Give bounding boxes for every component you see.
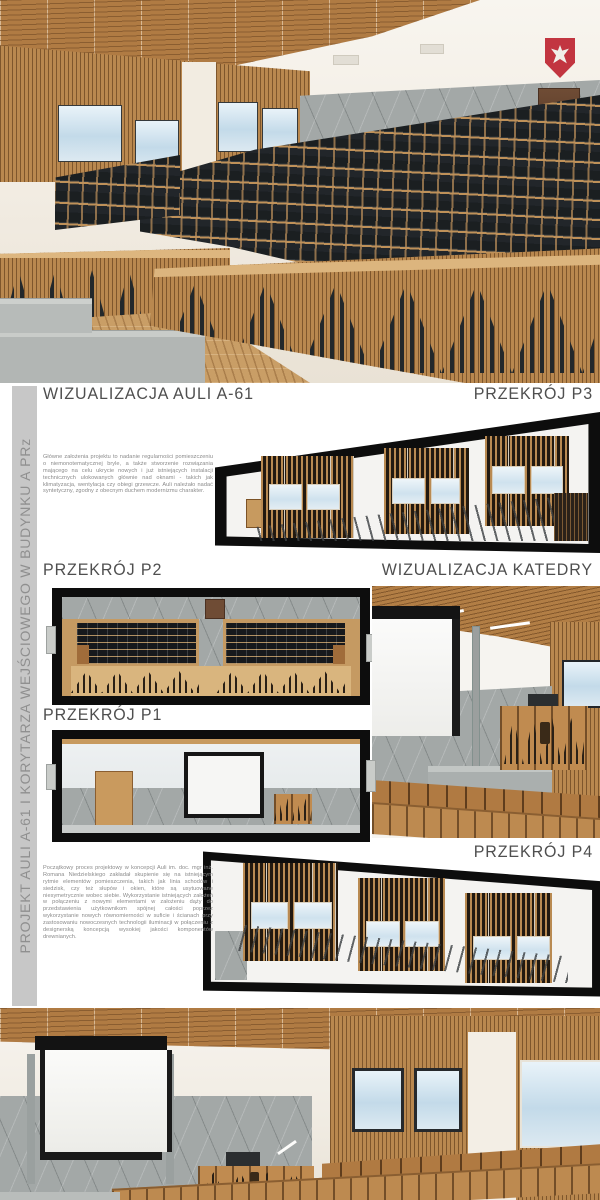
lectern — [274, 794, 313, 824]
vent-grille — [420, 44, 444, 54]
section-window — [492, 466, 525, 494]
heading-section-p2: PRZEKRÓJ P2 — [43, 562, 162, 581]
polish-eagle-emblem — [545, 38, 575, 78]
screen-mast — [472, 626, 480, 786]
vent-grille — [333, 55, 359, 65]
heading-section-p1: PRZEKRÓJ P1 — [43, 707, 162, 726]
katedra-lectern — [500, 706, 588, 770]
plan-railing-band — [71, 666, 351, 696]
katedra-front-render — [0, 1008, 600, 1200]
section-window — [531, 466, 564, 494]
sidebar-project-title-strip: PROJEKT AULI A-61 I KORYTARZA WEJŚCIOWEG… — [12, 386, 37, 1006]
window — [352, 1068, 404, 1132]
railing-cap — [0, 250, 230, 258]
plan-plaque — [205, 599, 225, 619]
plan-desk-box — [333, 645, 345, 665]
aula-visualization-render — [0, 0, 600, 383]
section-p3-drawing — [215, 406, 600, 556]
window — [218, 102, 258, 152]
projector-screen — [35, 1036, 167, 1160]
screen-side-bar — [452, 619, 460, 736]
door — [95, 771, 133, 826]
side-tab — [366, 760, 376, 792]
heading-section-p3: PRZEKRÓJ P3 — [474, 386, 593, 405]
concrete-step-upper — [0, 298, 92, 333]
laptop — [528, 694, 558, 706]
projector-screen — [372, 606, 460, 736]
section-window — [392, 478, 425, 504]
concrete-step — [0, 330, 205, 383]
projector-screen — [184, 752, 264, 818]
plan-door-tab — [46, 626, 56, 654]
laptop — [226, 1152, 260, 1166]
section-window — [269, 484, 302, 510]
architecture-presentation-board: WIZUALIZACJA AULI A-61 PRZEKRÓJ P3 PROJE… — [0, 0, 600, 1200]
window — [414, 1068, 462, 1132]
section-window — [307, 484, 340, 510]
screen-surface — [372, 619, 452, 736]
section-window — [431, 478, 460, 504]
screen-surface — [40, 1050, 172, 1152]
sidebar-title: PROJEKT AULI A-61 I KORYTARZA WEJŚCIOWEG… — [17, 438, 33, 953]
section-interior — [62, 739, 360, 833]
plan-seat-grid-right — [226, 623, 345, 665]
lectern-logo — [540, 722, 550, 744]
heading-visual-auli: WIZUALIZACJA AULI A-61 — [43, 386, 254, 405]
screen-top-bar — [372, 606, 460, 619]
floor-line — [62, 825, 360, 833]
section-p2-drawing — [52, 588, 370, 705]
side-tab — [46, 764, 56, 790]
plan-desk-box — [77, 645, 89, 665]
plan-seat-grid-left — [77, 623, 196, 665]
section-window — [294, 902, 332, 929]
lectern-slat-pattern — [274, 797, 311, 821]
screen-top-bar — [35, 1036, 167, 1050]
screen-post — [27, 1054, 35, 1184]
plan-railing-pattern — [71, 669, 200, 693]
window — [562, 660, 600, 708]
window — [58, 105, 122, 162]
section-p4-drawing — [203, 850, 600, 998]
eagle-icon — [551, 45, 569, 65]
heading-visual-katedra: WIZUALIZACJA KATEDRY — [382, 562, 593, 581]
plan-railing-pattern — [217, 669, 346, 693]
screen-bottom-bar — [40, 1152, 162, 1160]
katedra-visualization-render — [372, 586, 600, 838]
section-window — [251, 902, 289, 929]
paragraph-process: Początkowy proces projektowy w koncepcji… — [43, 865, 213, 941]
plan-interior — [62, 597, 360, 696]
section-p1-drawing — [52, 730, 370, 842]
wood-ceiling-line — [62, 739, 360, 744]
front-floor — [0, 1192, 120, 1200]
dark-slat-block — [554, 493, 589, 541]
paragraph-concept: Główne założenia projektu to nadanie reg… — [43, 454, 213, 495]
window-large — [520, 1060, 600, 1148]
